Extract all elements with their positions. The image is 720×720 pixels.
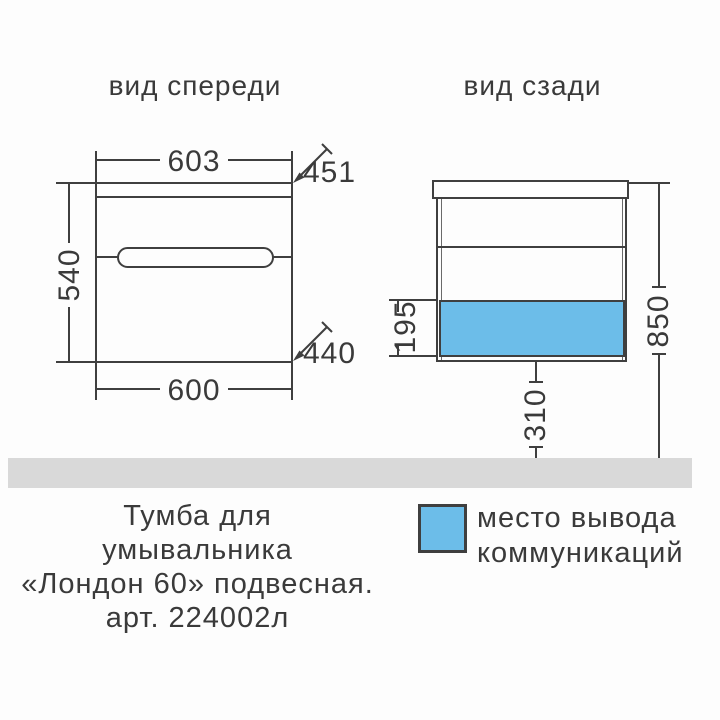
- caption-line-2: умывальника: [5, 533, 390, 567]
- legend-label-line-1: место вывода: [477, 501, 684, 536]
- caption-article-number: арт. 224002л: [5, 601, 390, 635]
- legend-label: место вывода коммуникаций: [477, 501, 684, 571]
- countertop-line: [96, 196, 292, 198]
- legend-color-swatch: [418, 504, 467, 553]
- caption-line-1: Тумба для: [5, 499, 390, 533]
- dim-label-width-top: 603: [152, 147, 236, 177]
- dim-line-850-lower: [658, 355, 660, 458]
- dim-label-height: 540: [55, 235, 85, 315]
- dim-label-floor-clearance: 310: [521, 375, 551, 455]
- back-view-title: вид сзади: [425, 70, 640, 102]
- dim-line-600-left: [96, 388, 160, 390]
- dim-label-outlet-height: 195: [391, 287, 421, 367]
- front-view-title: вид спереди: [40, 70, 350, 102]
- communications-outlet-zone: [439, 300, 625, 357]
- dim-label-total-height: 850: [644, 281, 674, 361]
- caption-line-3: «Лондон 60» подвесная.: [5, 567, 390, 601]
- dim-line-850-upper: [658, 183, 660, 287]
- floor-band: [8, 458, 692, 488]
- dim-label-width-bottom: 600: [152, 376, 236, 406]
- legend-label-line-2: коммуникаций: [477, 536, 684, 571]
- dim-line-600-right: [228, 388, 292, 390]
- product-caption: Тумба для умывальника «Лондон 60» подвес…: [5, 499, 390, 635]
- technical-drawing-page: { "colors": { "line": "#3f3f3f", "text":…: [0, 0, 720, 720]
- drawer-line-left: [96, 256, 118, 258]
- dim-label-depth-bottom: 440: [303, 339, 361, 369]
- drawer-handle: [117, 247, 274, 268]
- dim-label-depth-top: 451: [303, 158, 361, 188]
- dim-line-603-right: [228, 159, 292, 161]
- ext-line-bottom-left: [95, 363, 97, 400]
- dim-line-540-lower: [68, 307, 70, 362]
- ext-line-540-bottom: [56, 361, 95, 363]
- ext-line-top-left: [95, 151, 97, 183]
- dim-line-603-left: [96, 159, 160, 161]
- drawer-line-right: [272, 256, 292, 258]
- front-cabinet-outline: [95, 182, 293, 363]
- dim-line-540-upper: [68, 183, 70, 243]
- ext-line-540-top: [56, 182, 95, 184]
- back-divider-line: [438, 246, 625, 248]
- ext-line-850-top: [629, 182, 670, 184]
- ext-line-bottom-right: [291, 363, 293, 400]
